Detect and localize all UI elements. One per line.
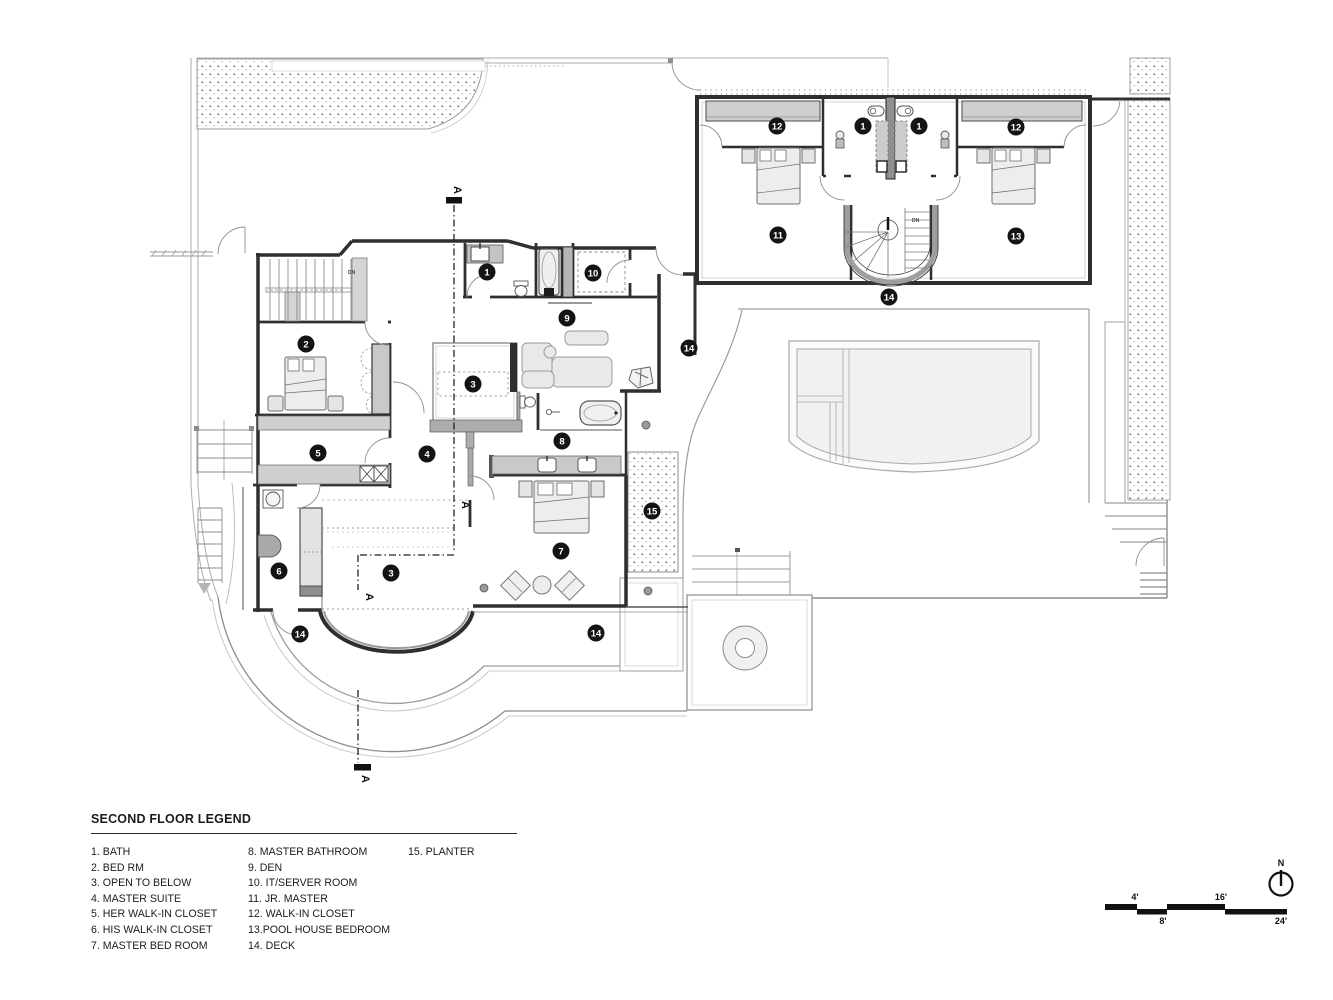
room-marker: 6 (271, 563, 288, 580)
scale-label-24: 24' (1275, 916, 1287, 926)
room-marker: 8 (554, 433, 571, 450)
room-marker: 9 (559, 310, 576, 327)
spiral-stair (844, 205, 938, 286)
planter-patch-ne (1130, 58, 1170, 94)
room-marker: 5 (310, 445, 327, 462)
svg-text:1: 1 (916, 121, 922, 132)
column (644, 587, 652, 595)
sink-pedestal (941, 131, 949, 139)
legend-item: 8. MASTER BATHROOM (248, 845, 408, 861)
site-lines (150, 58, 888, 601)
room-marker: 3 (465, 376, 482, 393)
legend-item: 13.POOL HOUSE BEDROOM (248, 923, 408, 939)
bed-room2 (268, 357, 343, 411)
svg-text:7: 7 (558, 546, 563, 557)
wardrobe-room2 (372, 344, 390, 414)
legend-item: 5. HER WALK-IN CLOSET (91, 907, 248, 923)
room-marker: 1 (911, 118, 928, 135)
bay-arc (320, 611, 473, 652)
room-marker: 10 (585, 265, 602, 282)
svg-text:10: 10 (588, 268, 599, 279)
svg-text:3: 3 (388, 568, 393, 579)
svg-text:14: 14 (591, 628, 602, 639)
legend-item: 14. DECK (248, 939, 408, 955)
room-marker: 12 (769, 118, 786, 135)
main-staircase (265, 258, 367, 321)
column (642, 421, 650, 429)
den-plant (629, 367, 653, 388)
svg-text:11: 11 (773, 230, 784, 241)
pool-house (697, 90, 1170, 286)
open-to-below-box (430, 343, 522, 448)
sink-room6 (263, 490, 283, 508)
scale-label-8: 8' (1159, 916, 1166, 926)
legend-column-3: 15. PLANTER (408, 845, 475, 954)
floor-plan-page: 11123345678910111212131414141415 AAAA DN… (0, 0, 1333, 1000)
legend-item: 7. MASTER BED ROOM (91, 939, 248, 955)
closet-shelf-left (706, 101, 820, 121)
legend-item: 12. WALK-IN CLOSET (248, 907, 408, 923)
legend-item: 1. BATH (91, 845, 248, 861)
planter-strip-east (1128, 99, 1170, 500)
legend-column-1: 1. BATH2. BED RM3. OPEN TO BELOW4. MASTE… (91, 845, 248, 954)
lounge-chairs (501, 571, 585, 601)
svg-text:6: 6 (276, 566, 281, 577)
legend-item: 6. HIS WALK-IN CLOSET (91, 923, 248, 939)
legend-rule (91, 833, 517, 834)
svg-text:13: 13 (1011, 231, 1022, 242)
room-marker: 3 (383, 565, 400, 582)
deck-arcs (212, 597, 687, 757)
north-label: N (1278, 858, 1285, 868)
room-marker: 1 (855, 118, 872, 135)
legend-item: 15. PLANTER (408, 845, 475, 861)
svg-text:2: 2 (303, 339, 308, 350)
closet-x-boxes (360, 466, 388, 482)
toilet (514, 281, 528, 297)
legend-column-2: 8. MASTER BATHROOM9. DEN10. IT/SERVER RO… (248, 845, 408, 954)
bed-master (519, 481, 604, 533)
room-marker: 14 (881, 289, 898, 306)
svg-text:1: 1 (484, 267, 490, 278)
legend-title: SECOND FLOOR LEGEND (91, 812, 531, 826)
legend-item: 9. DEN (248, 861, 408, 877)
wall-stub-room6 (258, 535, 281, 557)
section-letter: A (459, 501, 471, 509)
wardrobe-room6-cap (300, 586, 322, 596)
bed-room-11 (742, 148, 815, 204)
room-marker: 1 (479, 264, 496, 281)
scale-label-16: 16' (1215, 892, 1227, 902)
svg-text:14: 14 (684, 343, 695, 354)
legend-item: 4. MASTER SUITE (91, 892, 248, 908)
legend: SECOND FLOOR LEGEND 1. BATH2. BED RM3. O… (91, 812, 531, 954)
svg-text:15: 15 (647, 506, 658, 517)
svg-text:4: 4 (424, 449, 430, 460)
den-sofas (522, 331, 612, 388)
svg-text:12: 12 (1011, 122, 1022, 133)
column (480, 584, 488, 592)
sink-pedestal (836, 131, 844, 139)
room-marker: 15 (644, 503, 661, 520)
room-marker: 12 (1008, 119, 1025, 136)
room-marker: 14 (292, 626, 309, 643)
svg-text:9: 9 (564, 313, 569, 324)
section-tick (354, 764, 371, 771)
svg-text:8: 8 (559, 436, 564, 447)
svg-text:14: 14 (295, 629, 306, 640)
toilet (520, 396, 536, 408)
svg-text:5: 5 (315, 448, 321, 459)
dn-label: DN (348, 270, 356, 276)
scale-bar: 4' 8' 16' 24' (1105, 892, 1287, 926)
legend-item: 11. JR. MASTER (248, 892, 408, 908)
pool (789, 341, 1039, 472)
gray-bands (258, 247, 573, 596)
svg-text:3: 3 (470, 379, 475, 390)
room-marker: 2 (298, 336, 315, 353)
closet-shelf-right (962, 101, 1082, 121)
room-marker: 7 (553, 543, 570, 560)
legend-item: 2. BED RM (91, 861, 248, 877)
room-marker: 11 (770, 227, 787, 244)
bed-room-13 (977, 148, 1050, 204)
room-marker: 14 (588, 625, 605, 642)
north-arrow: N (1270, 858, 1293, 896)
section-letter: A (359, 775, 371, 783)
svg-text:14: 14 (884, 292, 895, 303)
room-marker: 13 (1008, 228, 1025, 245)
svg-text:12: 12 (772, 121, 783, 132)
scale-label-4: 4' (1131, 892, 1138, 902)
svg-text:1: 1 (860, 121, 866, 132)
legend-item: 10. IT/SERVER ROOM (248, 876, 408, 892)
section-letter: A (363, 593, 375, 601)
section-tick (446, 197, 462, 204)
room-marker: 4 (419, 446, 436, 463)
legend-item: 3. OPEN TO BELOW (91, 876, 248, 892)
room-marker: 14 (681, 340, 698, 357)
dn-label: DN (912, 218, 920, 224)
section-letter: A (451, 186, 463, 194)
wardrobe-room6 (300, 508, 322, 596)
